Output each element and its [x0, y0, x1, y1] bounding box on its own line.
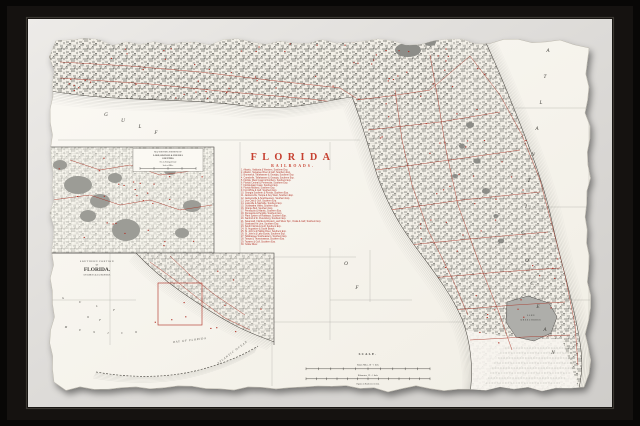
- railroad-number-marker: [484, 74, 485, 75]
- lake-okeechobee-label-1: LAKE: [527, 314, 535, 317]
- railroad-list-entry: 22. Seaboard Air Line, Southern Exp.: [241, 222, 279, 225]
- railroad-number-marker: [380, 138, 381, 139]
- railroad-number-marker: [135, 189, 136, 190]
- railroad-number-marker: [185, 316, 186, 317]
- railroad-number-marker: [398, 50, 399, 51]
- railroad-number-marker: [115, 223, 116, 224]
- railroad-number-marker: [550, 307, 551, 308]
- railroad-number-marker: [443, 189, 444, 190]
- railroad-list-entry: 15. Ocklawaha Valley, Southern Exp.: [241, 204, 279, 207]
- railroad-number-marker: [284, 51, 285, 52]
- railroad-number-marker: [484, 140, 485, 141]
- railroad-list-entry: 17. Pensacola & Atlantic, Southern Exp.: [241, 210, 282, 213]
- railroad-number-marker: [429, 153, 430, 154]
- railroad-number-marker: [501, 161, 502, 162]
- inset1-title-4: On an Enlarged Scale: [160, 162, 177, 164]
- railroad-number-marker: [479, 332, 480, 333]
- railroad-number-marker: [111, 58, 112, 59]
- railroad-number-marker: [107, 222, 108, 223]
- railroad-number-marker: [385, 50, 386, 51]
- railroad-number-marker: [70, 79, 71, 80]
- railroad-number-marker: [438, 55, 439, 56]
- sea-letter: G: [104, 112, 108, 118]
- railroad-number-marker: [189, 274, 190, 275]
- railroad-number-marker: [74, 90, 75, 91]
- railroad-number-marker: [184, 302, 185, 303]
- railroad-list-entry: 11. Jacksonville, Tampa & Key West, Sout…: [241, 194, 294, 197]
- railroad-list-entry: 29. Tavares & Gulf, Southern Exp.: [241, 240, 276, 243]
- railroad-number-marker: [473, 176, 474, 177]
- railroad-number-marker: [125, 49, 126, 50]
- railroad-number-marker: [389, 78, 390, 79]
- map-title: FLORIDA: [251, 152, 336, 163]
- sea-letter: N: [550, 350, 555, 356]
- railroad-number-marker: [194, 64, 195, 65]
- railroad-number-marker: [171, 319, 172, 320]
- railroad-number-marker: [216, 327, 217, 328]
- sea-letter: F: [112, 308, 115, 312]
- railroad-number-marker: [175, 97, 176, 98]
- railroad-number-marker: [165, 59, 166, 60]
- railroad-number-marker: [456, 113, 457, 114]
- railroad-number-marker: [148, 230, 149, 231]
- railroad-number-marker: [74, 85, 75, 86]
- railroad-number-marker: [344, 45, 345, 46]
- railroad-number-marker: [358, 99, 359, 100]
- railroad-number-marker: [90, 82, 91, 83]
- inset2-title-1: SOUTHERN PORTION: [80, 260, 114, 263]
- railroad-number-marker: [233, 279, 234, 280]
- railroad-number-marker: [376, 54, 377, 55]
- railroad-number-marker: [169, 176, 170, 177]
- railroad-list-entry: 12. Jacksonville & Southwestern, Souther…: [241, 197, 290, 200]
- railroad-number-marker: [520, 299, 521, 300]
- railroad-list-entry: 28. Tampa & Thonotosassa, Southern Exp.: [241, 238, 285, 241]
- railroad-number-marker: [140, 183, 141, 184]
- railroad-number-marker: [103, 158, 104, 159]
- sea-letter: C: [530, 281, 534, 287]
- railroad-number-marker: [495, 199, 496, 200]
- railroad-number-marker: [393, 79, 394, 80]
- railroad-number-marker: [169, 199, 170, 200]
- railroad-number-marker: [147, 193, 148, 194]
- railroad-number-marker: [371, 64, 372, 65]
- railroad-list-entry: 26. St. John's & Lake Eustis, Southern E…: [241, 233, 286, 236]
- scale-miles-label: Statute Miles, 18 = 1 Inch.: [357, 365, 380, 367]
- railroad-number-marker: [126, 53, 127, 54]
- railroad-number-marker: [85, 80, 86, 81]
- railroad-number-marker: [426, 123, 427, 124]
- railroad-list-entry: 3. Brunswick, Tallahassee & Georgia, Sou…: [241, 174, 295, 177]
- railroad-number-marker: [420, 228, 421, 229]
- railroad-number-marker: [59, 168, 60, 169]
- inset2-title-2: OF: [96, 264, 98, 266]
- railroad-number-marker: [481, 230, 482, 231]
- sea-letter: C: [121, 331, 123, 335]
- railroad-number-marker: [153, 184, 154, 185]
- railroad-number-marker: [207, 98, 208, 99]
- railroad-number-marker: [209, 69, 210, 70]
- railroad-list-entry: 20. Sanford & St. Petersburg, Southern E…: [241, 217, 287, 220]
- railroad-number-marker: [430, 220, 431, 221]
- railroad-number-marker: [511, 176, 512, 177]
- railroad-number-marker: [436, 193, 437, 194]
- sea-letter: E: [78, 328, 81, 332]
- railroad-number-marker: [143, 69, 144, 70]
- railroad-number-marker: [474, 203, 475, 204]
- railroad-number-marker: [135, 84, 136, 85]
- inset1-title-3: COUNTIES.: [162, 158, 174, 160]
- railroad-list-entry: 25. St. John's & Halifax River, Southern…: [241, 230, 287, 233]
- railroad-number-marker: [84, 237, 85, 238]
- railroad-number-marker: [444, 70, 445, 71]
- scene: LAKE OKEECHOBEE GULFOFATLANTICOCEAN: [0, 0, 640, 426]
- inset1-title-2: LAKE, ORANGE & VOLUSIA: [153, 154, 183, 157]
- railroad-list-entry: 18. Pensacola & Perdido, Southern Exp.: [241, 212, 282, 215]
- railroad-number-marker: [552, 268, 553, 269]
- lake-okeechobee-label-2: OKEECHOBEE: [521, 320, 542, 322]
- railroad-list-entry: 10. Georgia Southern & Florida, Southern…: [241, 192, 289, 195]
- sea-letter: X: [92, 330, 95, 334]
- sea-letter: O: [344, 261, 348, 267]
- railroad-number-marker: [258, 47, 259, 48]
- railroad-number-marker: [163, 50, 164, 51]
- railroad-number-marker: [554, 278, 555, 279]
- inset-enlarged-counties: MAP SHOWING PORTIONS OF LAKE, ORANGE & V…: [50, 147, 214, 253]
- railroad-list-entry: 13. Live Oak & Gulf, Southern Exp.: [241, 199, 277, 202]
- railroad-number-marker: [406, 72, 407, 73]
- railroad-number-marker: [77, 196, 78, 197]
- railroad-number-marker: [445, 60, 446, 61]
- railroad-number-marker: [275, 88, 276, 89]
- railroad-number-marker: [373, 60, 374, 61]
- railroad-number-marker: [164, 241, 165, 242]
- sea-letter: O: [525, 258, 529, 264]
- railroad-number-marker: [495, 220, 496, 221]
- railroad-list-entry: 23. South Florida & Gulf, Southern Exp.: [241, 225, 282, 228]
- railroad-number-marker: [445, 49, 446, 50]
- railroad-number-marker: [99, 170, 100, 171]
- railroad-list-entry: 16. Orange Belt, Southern Exp.: [241, 207, 273, 210]
- railroad-number-marker: [357, 63, 358, 64]
- sea-letter: I: [524, 204, 527, 210]
- railroad-number-marker: [462, 235, 463, 236]
- railroad-list-entry: 30. Yellow River.: [241, 243, 258, 246]
- railroad-number-marker: [202, 176, 203, 177]
- railroad-list-entry: 27. Tallahassee Southeastern, Southern E…: [241, 235, 287, 238]
- railroad-number-marker: [477, 68, 478, 69]
- railroad-number-marker: [256, 51, 257, 52]
- railroad-number-marker: [388, 80, 389, 81]
- railroad-number-marker: [525, 140, 526, 141]
- railroad-number-marker: [198, 81, 199, 82]
- railroad-number-marker: [421, 238, 422, 239]
- railroad-number-marker: [476, 295, 477, 296]
- railroad-number-marker: [557, 258, 558, 259]
- railroad-number-marker: [235, 331, 236, 332]
- railroad-number-marker: [255, 77, 256, 78]
- railroad-number-marker: [458, 174, 459, 175]
- railroad-list-entry: 24. St. Augustine & South Beach.: [241, 227, 275, 230]
- railroad-number-marker: [476, 109, 477, 110]
- railroad-number-marker: [420, 96, 421, 97]
- railroad-number-marker: [420, 224, 421, 225]
- railroad-number-marker: [241, 51, 242, 52]
- railroad-number-marker: [532, 265, 533, 266]
- sea-letter: L: [539, 100, 543, 106]
- railroad-list-entry: 4. Carrabelle, Tallahassee & Georgia, So…: [241, 176, 295, 179]
- railroad-number-marker: [152, 203, 153, 204]
- railroad-number-marker: [433, 83, 434, 84]
- map-subtitle: RAILROADS.: [271, 164, 315, 168]
- railroad-number-marker: [408, 51, 409, 52]
- railroad-number-marker: [143, 200, 144, 201]
- railroad-number-marker: [333, 86, 334, 87]
- railroad-number-marker: [133, 182, 134, 183]
- railroad-number-marker: [257, 80, 258, 81]
- railroad-number-marker: [195, 92, 196, 93]
- scale-title: SCALE.: [359, 352, 378, 356]
- inset1-title-5: Scale of Miles: [163, 164, 174, 167]
- railroad-number-marker: [231, 72, 232, 73]
- railroad-number-marker: [104, 196, 105, 197]
- railroad-number-marker: [439, 143, 440, 144]
- railroad-number-marker: [539, 275, 540, 276]
- sea-letter: L: [95, 304, 98, 308]
- railroad-number-marker: [193, 241, 194, 242]
- railroad-number-marker: [228, 88, 229, 89]
- inset2-title-4: ON SAME SCALE AS MAIN MAP.: [84, 273, 111, 276]
- railroad-number-marker: [522, 190, 523, 191]
- railroad-list-entry: 2. Atlantic, Suwanee River & Gulf, South…: [241, 171, 291, 174]
- railroad-number-marker: [316, 45, 317, 46]
- railroad-number-marker: [315, 76, 316, 77]
- railroad-number-marker: [467, 140, 468, 141]
- railroad-number-marker: [445, 267, 446, 268]
- inset1-title-1: MAP SHOWING PORTIONS OF: [154, 151, 182, 154]
- railroad-list-entry: 19. Plant System of Railways, Southern E…: [241, 215, 287, 218]
- railroad-list-entry: 9. Fort White & Gulf, Southern Exp.: [241, 189, 277, 192]
- railroad-number-marker: [397, 76, 398, 77]
- railroad-number-marker: [171, 48, 172, 49]
- railroad-number-marker: [224, 305, 225, 306]
- railroad-number-marker: [124, 233, 125, 234]
- railroad-number-marker: [260, 309, 261, 310]
- railroad-list-entry: 6. Florida Central & Peninsular, Souther…: [241, 181, 288, 184]
- railroad-number-marker: [123, 185, 124, 186]
- railroad-list-entry: 8. Florida Midland, Southern Exp.: [241, 187, 275, 190]
- railroad-number-marker: [449, 186, 450, 187]
- railroad-number-marker: [446, 222, 447, 223]
- railroad-number-marker: [465, 146, 466, 147]
- railroad-number-marker: [136, 195, 137, 196]
- scale-km-label: Kilometres, 29 = 1 Inch.: [358, 375, 379, 377]
- railroad-number-marker: [452, 86, 453, 87]
- railroad-number-marker: [290, 43, 291, 44]
- railroad-list-entry: 5. Florida, West Coast & Northern, South…: [241, 179, 292, 182]
- railroad-number-marker: [382, 136, 383, 137]
- sea-letter: F: [98, 318, 101, 322]
- inset2-title-3: FLORIDA.: [84, 267, 111, 273]
- railroad-list-entry: 1. Atlantic, Valdosta & Western, Souther…: [241, 169, 289, 172]
- railroad-list-entry: 21. Savannah, Florida & Western, and Sil…: [241, 220, 321, 223]
- railroad-number-marker: [517, 309, 518, 310]
- railroad-number-marker: [210, 328, 211, 329]
- railroad-number-marker: [113, 224, 114, 225]
- railroad-list-entry: 7. Florida East Coast, Southern Exp.: [241, 184, 279, 187]
- sea-letter: M: [64, 325, 68, 329]
- railroad-number-marker: [457, 251, 458, 252]
- railroad-number-marker: [448, 56, 449, 57]
- railroad-number-marker: [444, 142, 445, 143]
- railroad-number-marker: [388, 116, 389, 117]
- railroad-number-marker: [163, 245, 164, 246]
- railroad-number-marker: [69, 83, 70, 84]
- railroad-number-marker: [494, 309, 495, 310]
- sea-letter: L: [138, 124, 142, 130]
- railroad-number-marker: [498, 342, 499, 343]
- sea-letter: N: [530, 152, 535, 158]
- railroad-number-marker: [386, 103, 387, 104]
- railroad-number-marker: [487, 314, 488, 315]
- sea-letter: C: [521, 230, 525, 236]
- framed-map-photo: LAKE OKEECHOBEE GULFOFATLANTICOCEAN: [0, 0, 640, 426]
- railroad-number-marker: [118, 184, 119, 185]
- railroad-number-marker: [523, 317, 524, 318]
- railroad-number-marker: [78, 87, 79, 88]
- railroad-number-marker: [155, 322, 156, 323]
- scale-caption: Figures on Roads refer to List.: [356, 382, 380, 385]
- railroad-number-marker: [205, 91, 206, 92]
- railroad-number-marker: [217, 271, 218, 272]
- railroad-number-marker: [353, 62, 354, 63]
- railroad-number-marker: [184, 94, 185, 95]
- railroad-number-marker: [487, 317, 488, 318]
- railroad-list-entry: 14. Louisville & Nashville, Southern Exp…: [241, 202, 283, 205]
- railroad-number-marker: [226, 92, 227, 93]
